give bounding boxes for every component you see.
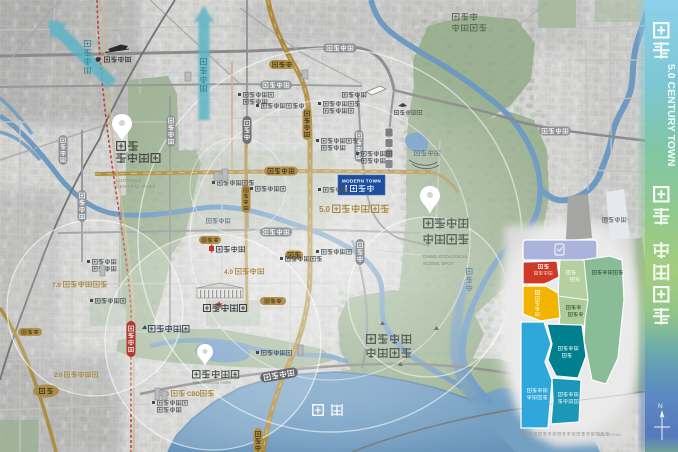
svg-text:SCENIC SPOT: SCENIC SPOT — [423, 261, 454, 266]
svg-text:MODERN TOWN: MODERN TOWN — [342, 179, 381, 184]
svg-text:7.0: 7.0 — [52, 282, 61, 289]
svg-text:CENTRAL PARK: CENTRAL PARK — [116, 184, 156, 189]
svg-text:DAWEI ECOLOGICAL: DAWEI ECOLOGICAL — [423, 254, 469, 259]
svg-text:2.0: 2.0 — [54, 373, 63, 379]
svg-text:FANGXINGHU PARK: FANGXINGHU PARK — [193, 380, 231, 385]
svg-text:MASTER PLAN: MASTER PLAN — [598, 433, 621, 437]
svg-text:5.0: 5.0 — [319, 205, 331, 214]
svg-text:N: N — [658, 403, 663, 410]
svg-text:5.0 CENTURY TOWN: 5.0 CENTURY TOWN — [665, 64, 677, 167]
svg-text:LUOGANG: LUOGANG — [116, 178, 142, 183]
svg-text:4.0: 4.0 — [224, 269, 233, 276]
svg-text:CBD: CBD — [187, 392, 201, 398]
